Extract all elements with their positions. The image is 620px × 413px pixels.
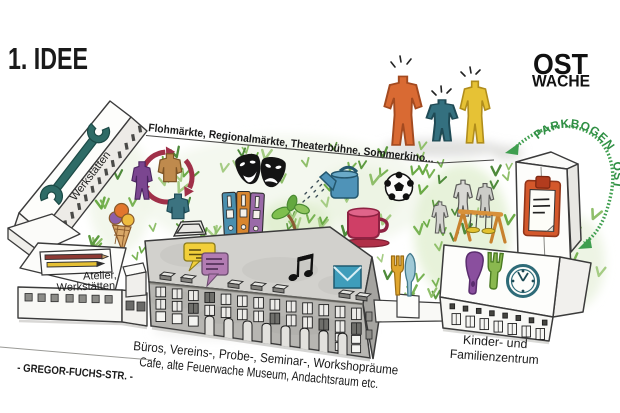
svg-text:- GREGOR-FUCHS-STR. -: - GREGOR-FUCHS-STR. - — [17, 362, 134, 383]
svg-text:Werkstätten: Werkstätten — [56, 280, 115, 294]
svg-text:1. IDEE: 1. IDEE — [8, 41, 88, 76]
svg-text:WACHE: WACHE — [532, 72, 590, 91]
